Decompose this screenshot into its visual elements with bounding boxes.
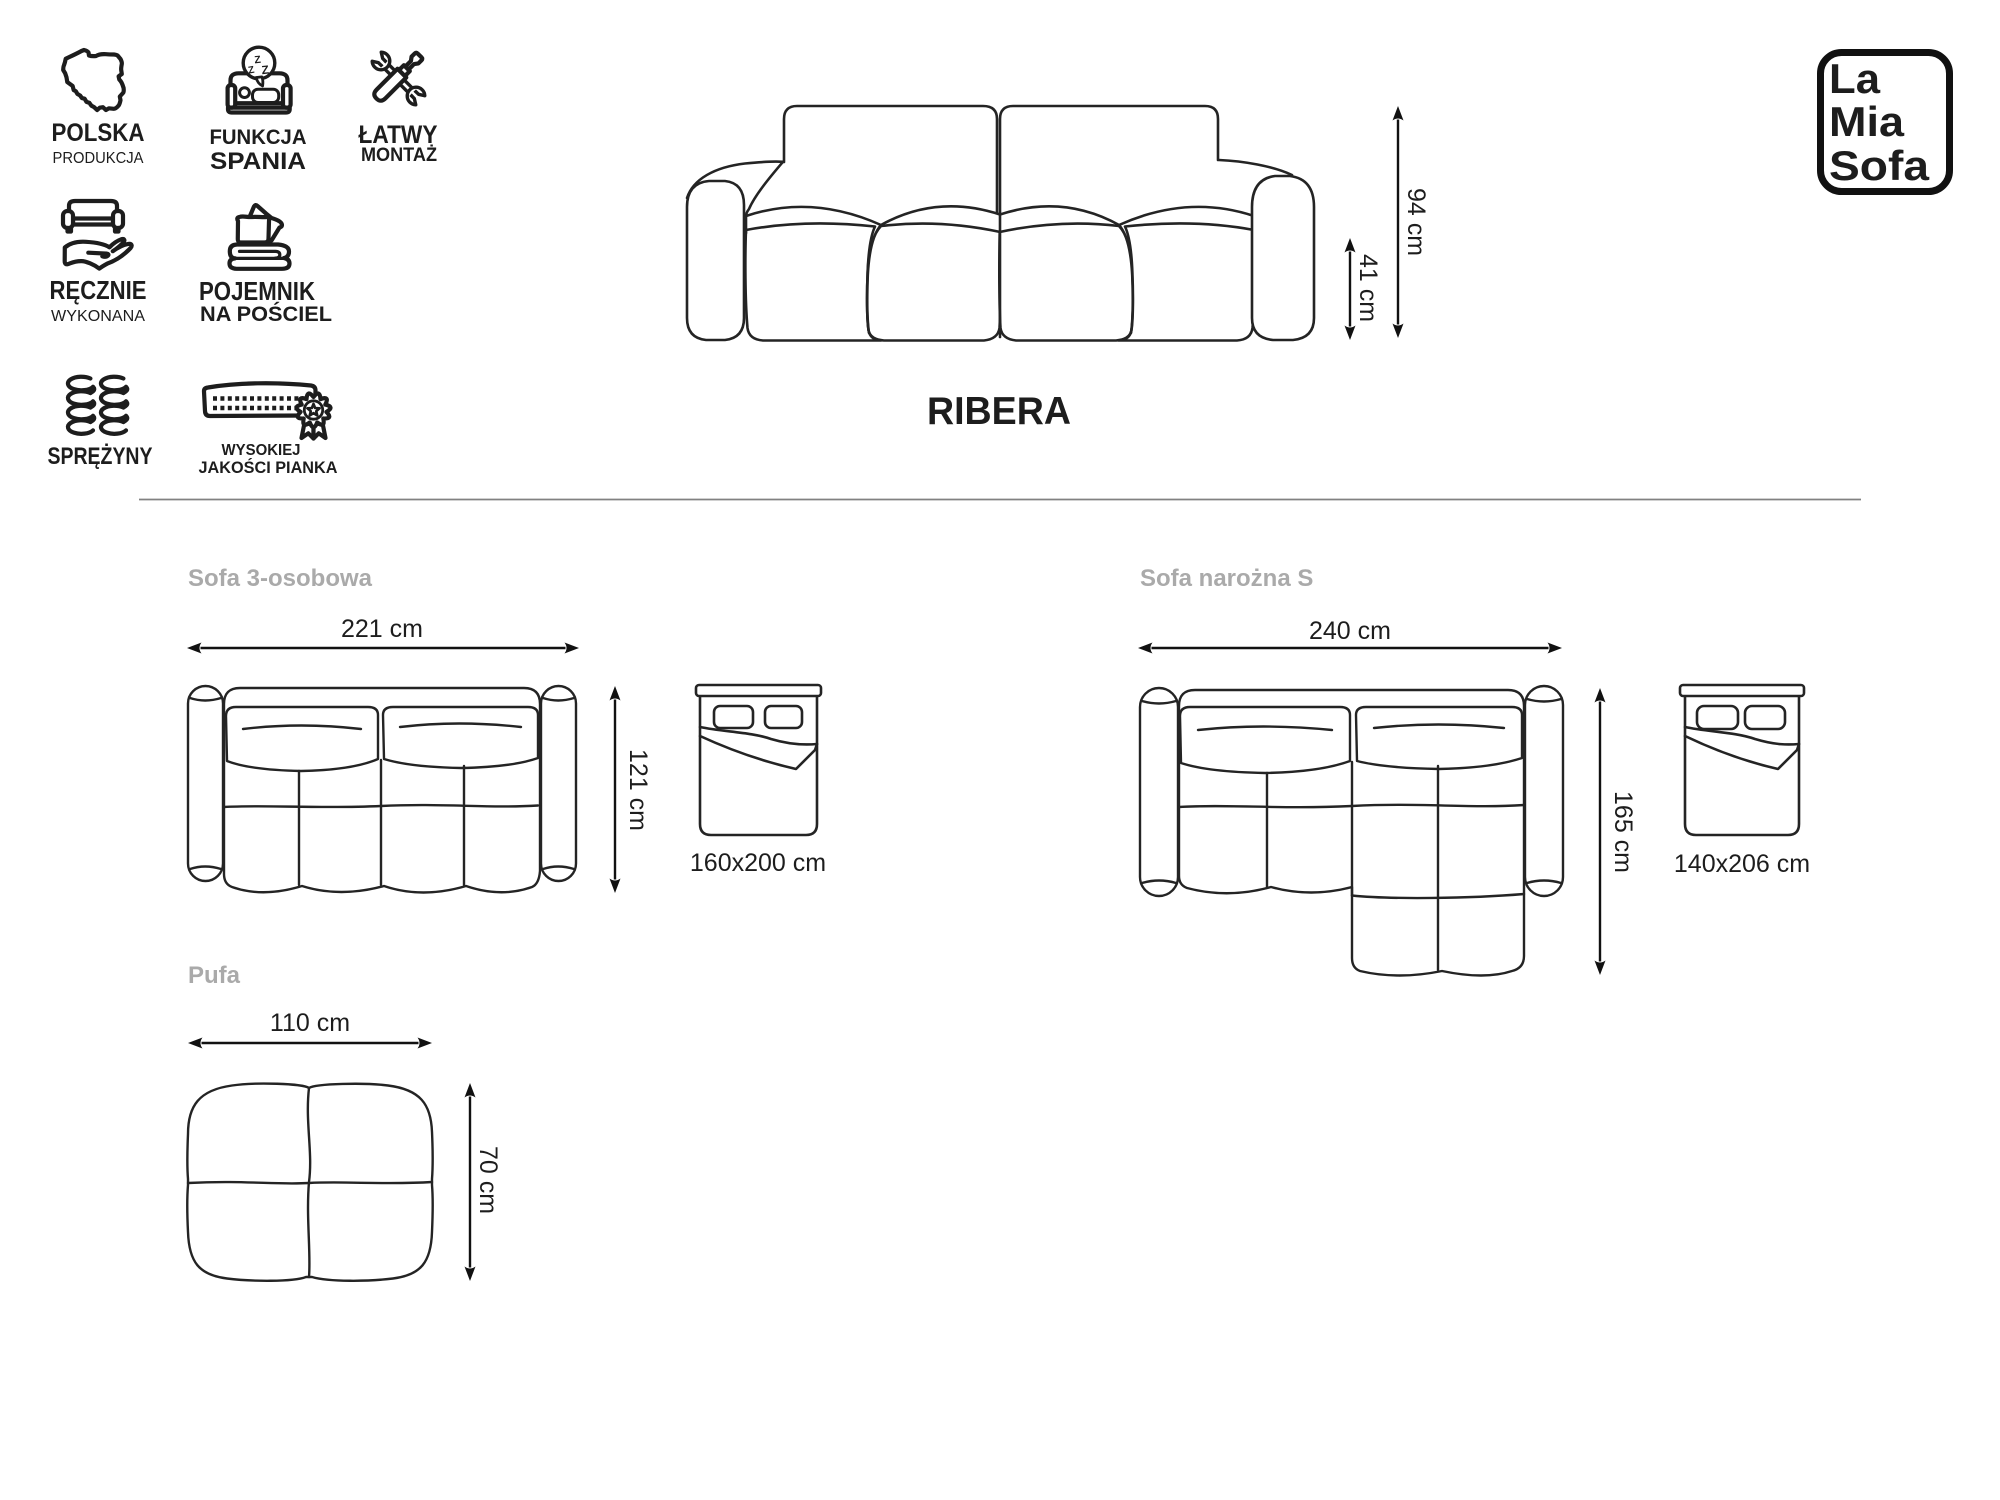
svg-text:SPRĘŻYNY: SPRĘŻYNY [48, 443, 153, 470]
svg-text:MONTAŻ: MONTAŻ [361, 145, 437, 166]
svg-text:41 cm: 41 cm [1354, 254, 1382, 322]
svg-text:110 cm: 110 cm [270, 1009, 350, 1037]
svg-text:Pufa: Pufa [188, 962, 241, 989]
svg-text:Sofa narożna S: Sofa narożna S [1140, 565, 1313, 592]
svg-text:RIBERA: RIBERA [927, 390, 1071, 433]
svg-text:221 cm: 221 cm [341, 615, 423, 643]
svg-text:70 cm: 70 cm [474, 1146, 502, 1214]
svg-text:165 cm: 165 cm [1609, 791, 1637, 873]
svg-text:POLSKA: POLSKA [52, 119, 145, 147]
svg-text:POJEMNIK: POJEMNIK [199, 276, 315, 306]
svg-text:Z: Z [261, 63, 270, 78]
svg-text:Sofa: Sofa [1829, 142, 1930, 189]
svg-text:160x200 cm: 160x200 cm [690, 849, 826, 877]
svg-text:Sofa 3-osobowa: Sofa 3-osobowa [188, 565, 373, 592]
svg-text:NA POŚCIEL: NA POŚCIEL [200, 302, 332, 326]
svg-text:JAKOŚCI PIANKA: JAKOŚCI PIANKA [199, 458, 338, 477]
svg-text:RĘCZNIE: RĘCZNIE [50, 275, 147, 305]
svg-text:240 cm: 240 cm [1309, 617, 1391, 645]
svg-text:121 cm: 121 cm [624, 749, 652, 831]
svg-text:La: La [1829, 55, 1881, 102]
svg-text:WYKONANA: WYKONANA [51, 308, 146, 325]
svg-text:94 cm: 94 cm [1402, 188, 1430, 256]
svg-text:140x206 cm: 140x206 cm [1674, 850, 1810, 878]
svg-text:FUNKCJA: FUNKCJA [210, 126, 307, 149]
svg-text:Mia: Mia [1829, 98, 1905, 145]
svg-text:SPANIA: SPANIA [210, 148, 306, 175]
svg-text:PRODUKCJA: PRODUKCJA [53, 150, 144, 167]
svg-text:WYSOKIEJ: WYSOKIEJ [222, 442, 301, 459]
